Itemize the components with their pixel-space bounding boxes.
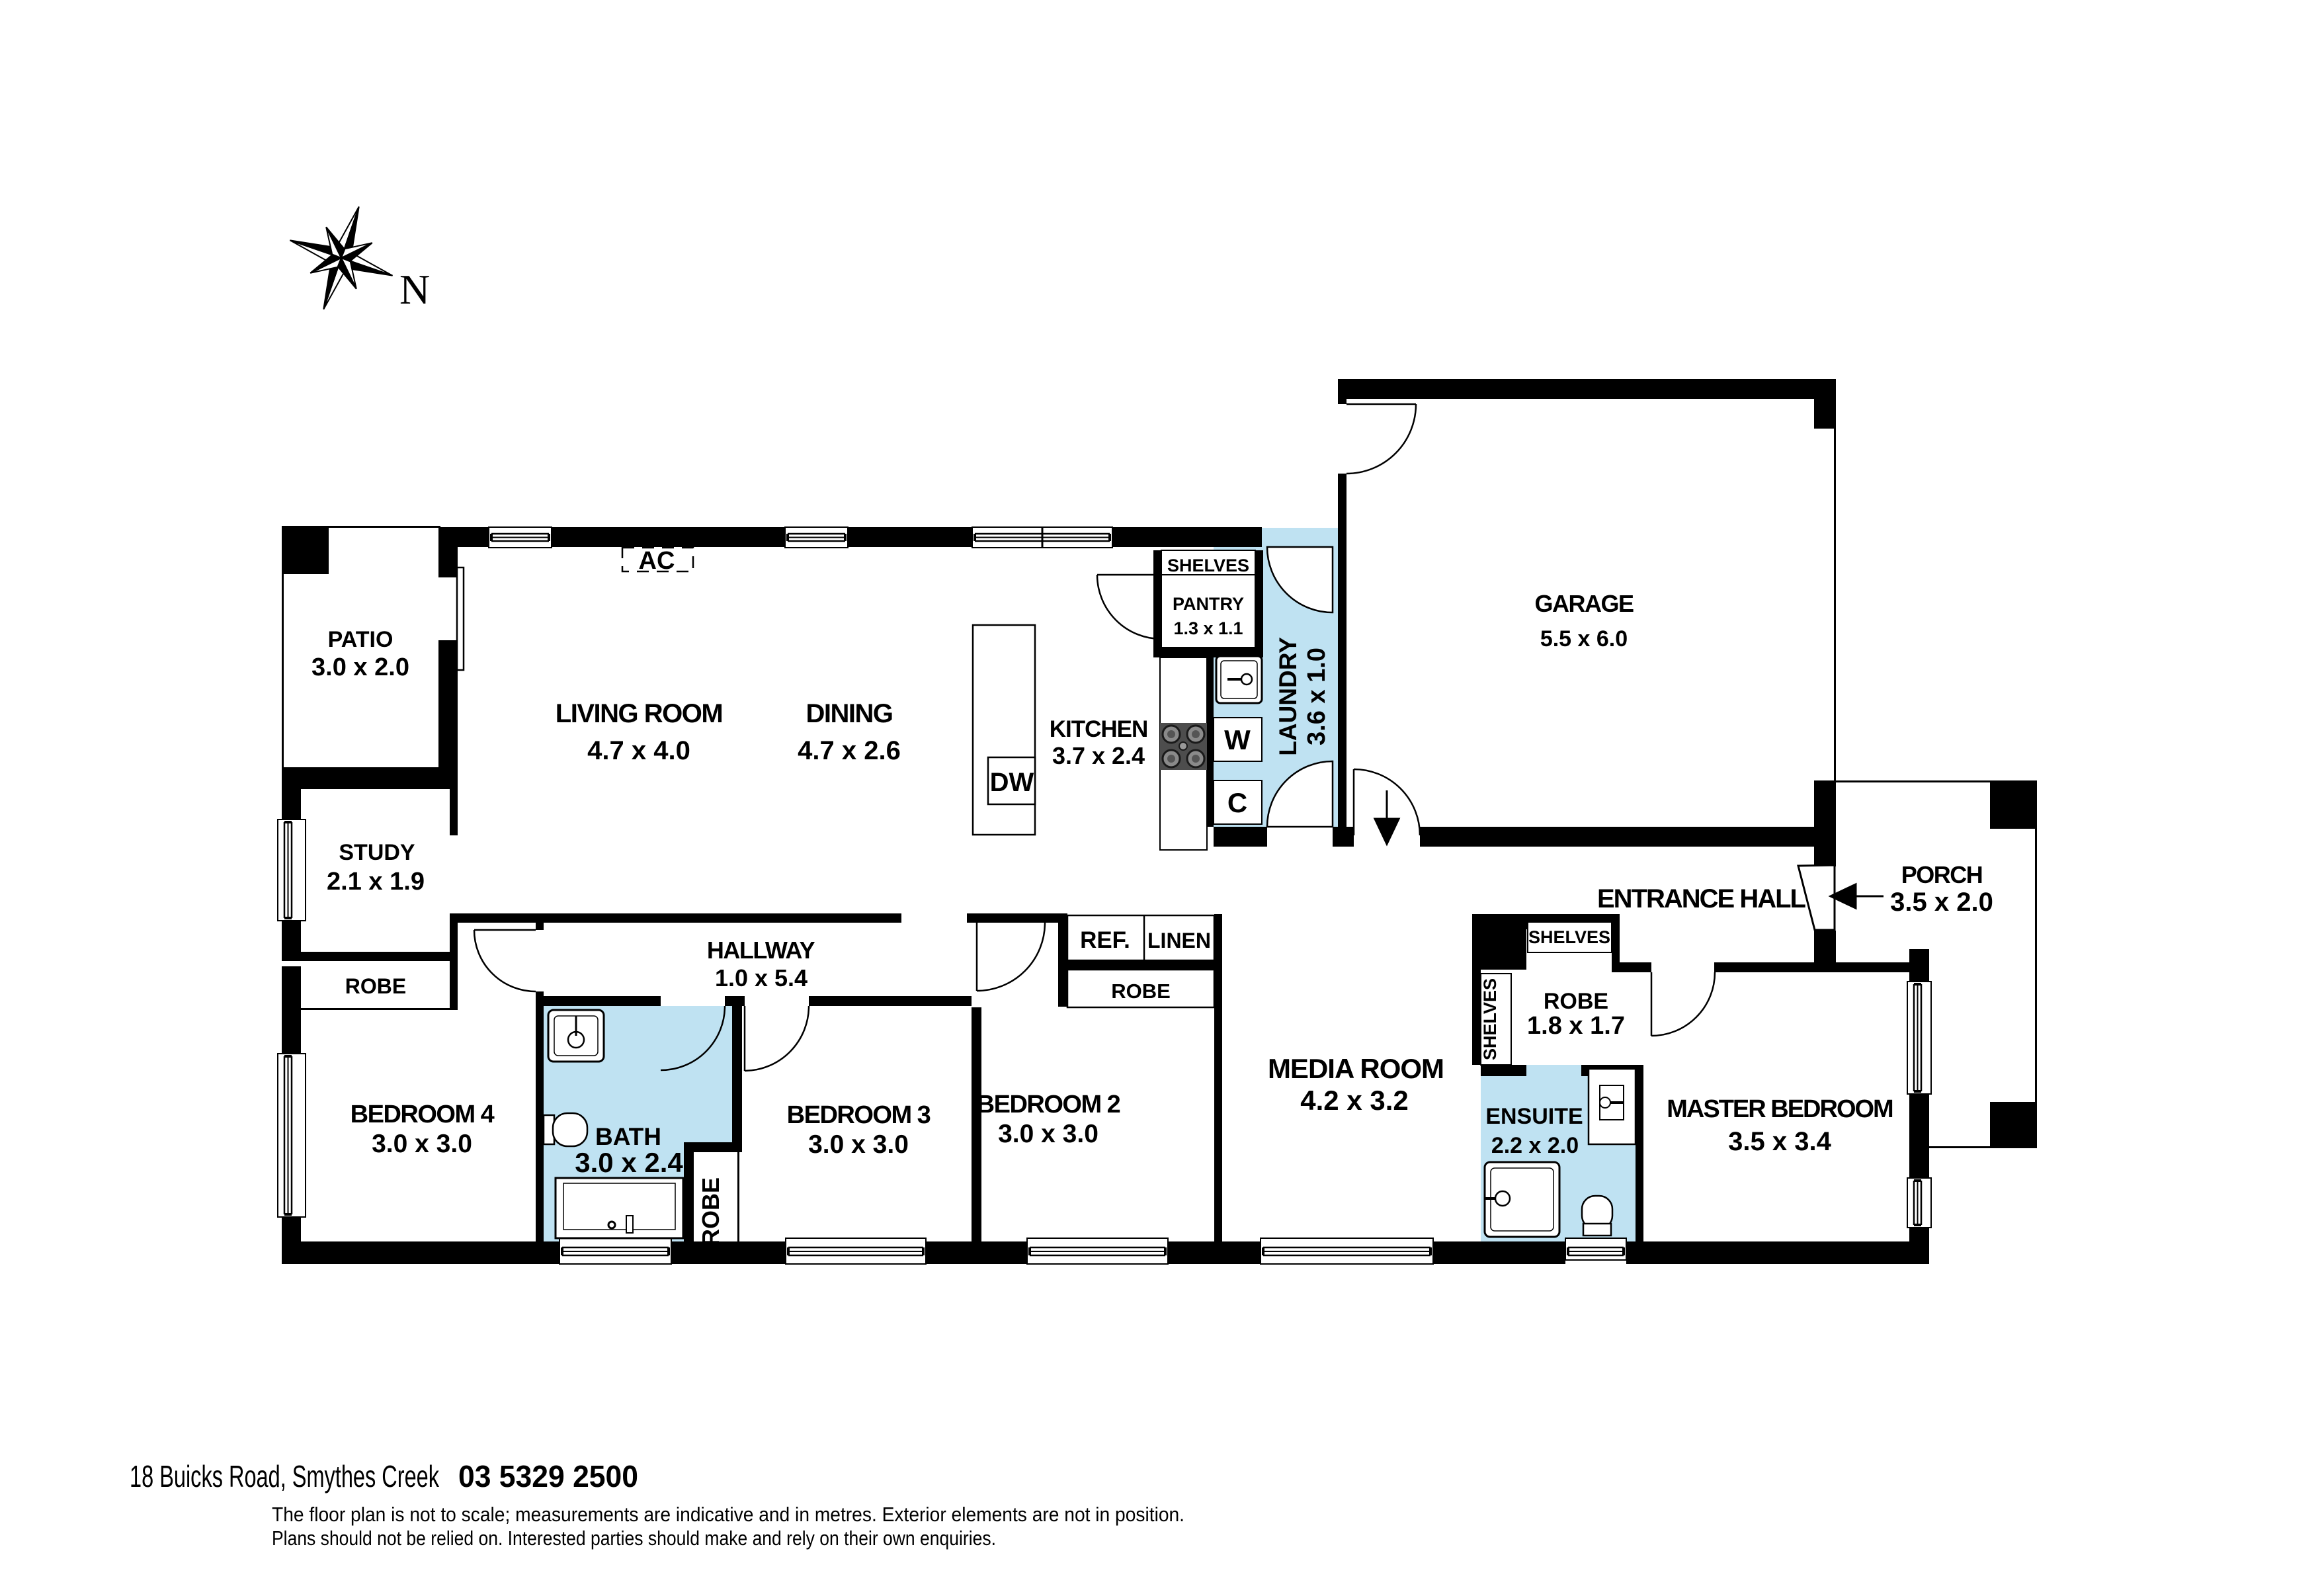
svg-text:1.0 x 5.4: 1.0 x 5.4 <box>715 964 808 991</box>
svg-text:HALLWAY: HALLWAY <box>707 937 815 964</box>
svg-text:PANTRY: PANTRY <box>1173 594 1244 614</box>
svg-text:The floor plan is not to scale: The floor plan is not to scale; measurem… <box>272 1503 1184 1526</box>
svg-text:4.2 x 3.2: 4.2 x 3.2 <box>1300 1085 1408 1116</box>
svg-text:ROBE: ROBE <box>345 974 406 998</box>
svg-text:C: C <box>1227 787 1247 818</box>
svg-text:SHELVES: SHELVES <box>1528 927 1610 947</box>
svg-text:3.5 x 2.0: 3.5 x 2.0 <box>1890 888 1993 917</box>
svg-text:STUDY: STUDY <box>339 840 415 865</box>
svg-text:BEDROOM 2: BEDROOM 2 <box>977 1091 1120 1118</box>
svg-text:3.0 x 3.0: 3.0 x 3.0 <box>372 1130 472 1158</box>
svg-text:KITCHEN: KITCHEN <box>1050 716 1148 742</box>
svg-text:BATH: BATH <box>595 1123 661 1150</box>
svg-text:ENTRANCE HALL: ENTRANCE HALL <box>1597 884 1806 913</box>
svg-text:Plans should not be relied on.: Plans should not be relied on. Intereste… <box>272 1527 996 1550</box>
svg-text:LIVING ROOM: LIVING ROOM <box>556 699 722 728</box>
svg-text:W: W <box>1224 724 1251 755</box>
svg-text:1.8 x 1.7: 1.8 x 1.7 <box>1527 1012 1625 1040</box>
svg-text:SHELVES: SHELVES <box>1480 978 1500 1060</box>
svg-text:03 5329 2500: 03 5329 2500 <box>458 1459 638 1493</box>
svg-text:3.0 x 2.0: 3.0 x 2.0 <box>311 653 409 681</box>
svg-text:REF.: REF. <box>1080 927 1130 953</box>
svg-text:LINEN: LINEN <box>1147 929 1211 952</box>
svg-text:5.5 x 6.0: 5.5 x 6.0 <box>1540 626 1628 651</box>
svg-text:3.0 x 2.4: 3.0 x 2.4 <box>575 1147 683 1178</box>
svg-text:ROBE: ROBE <box>1544 989 1608 1014</box>
svg-text:1.3 x 1.1: 1.3 x 1.1 <box>1173 618 1243 638</box>
svg-text:BEDROOM 4: BEDROOM 4 <box>351 1101 495 1128</box>
svg-text:18 Buicks Road, Smythes Creek: 18 Buicks Road, Smythes Creek <box>130 1459 440 1493</box>
svg-text:3.5 x 3.4: 3.5 x 3.4 <box>1728 1127 1831 1156</box>
svg-text:BEDROOM 3: BEDROOM 3 <box>787 1101 931 1129</box>
svg-text:2.1 x 1.9: 2.1 x 1.9 <box>327 868 425 896</box>
svg-text:PORCH: PORCH <box>1901 861 1983 888</box>
svg-text:MEDIA ROOM: MEDIA ROOM <box>1268 1053 1444 1084</box>
svg-text:N: N <box>399 266 430 313</box>
svg-text:ROBE: ROBE <box>1111 980 1171 1003</box>
svg-text:PATIO: PATIO <box>328 627 394 652</box>
svg-text:4.7 x 2.6: 4.7 x 2.6 <box>798 736 901 765</box>
svg-text:4.7 x 4.0: 4.7 x 4.0 <box>587 736 690 765</box>
svg-text:GARAGE: GARAGE <box>1534 590 1633 617</box>
svg-text:AC: AC <box>639 547 675 575</box>
svg-text:3.0 x 3.0: 3.0 x 3.0 <box>998 1120 1098 1148</box>
svg-text:LAUNDRY: LAUNDRY <box>1274 637 1302 756</box>
svg-text:ENSUITE: ENSUITE <box>1485 1104 1583 1129</box>
svg-text:SHELVES: SHELVES <box>1167 556 1249 575</box>
svg-text:MASTER BEDROOM: MASTER BEDROOM <box>1667 1095 1893 1123</box>
svg-text:3.0 x 3.0: 3.0 x 3.0 <box>808 1130 909 1159</box>
svg-text:DINING: DINING <box>806 699 893 728</box>
svg-text:3.6 x 1.0: 3.6 x 1.0 <box>1303 648 1331 745</box>
svg-text:3.7 x 2.4: 3.7 x 2.4 <box>1052 742 1145 769</box>
svg-text:DW: DW <box>990 768 1034 797</box>
svg-text:2.2 x 2.0: 2.2 x 2.0 <box>1491 1133 1579 1158</box>
svg-text:ROBE: ROBE <box>697 1177 724 1246</box>
